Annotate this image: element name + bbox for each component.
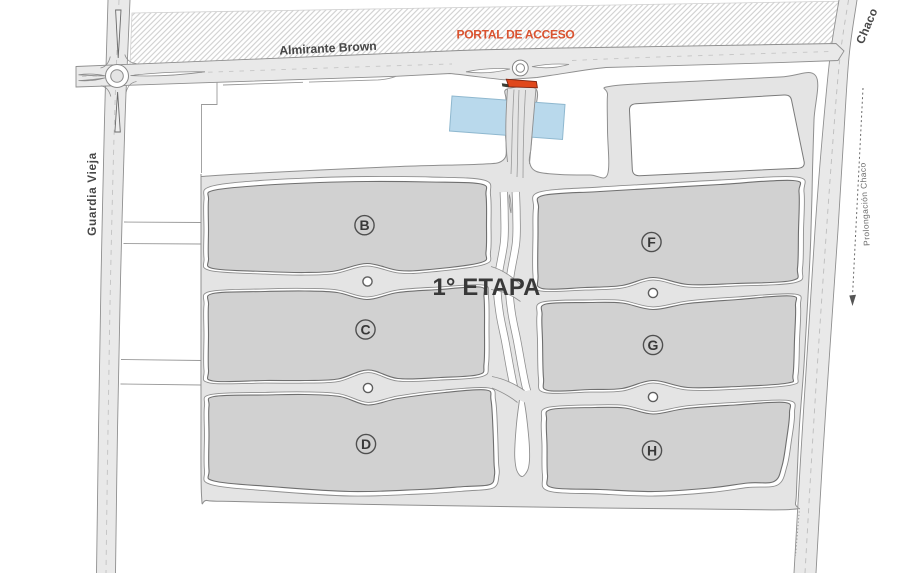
svg-text:1° ETAPA: 1° ETAPA	[432, 274, 540, 301]
svg-text:B: B	[359, 217, 369, 233]
svg-text:F: F	[647, 234, 656, 250]
svg-text:Guardia Vieja: Guardia Vieja	[85, 152, 99, 236]
svg-text:G: G	[648, 337, 659, 353]
svg-text:D: D	[361, 436, 371, 452]
svg-text:C: C	[360, 322, 370, 338]
svg-text:H: H	[647, 443, 657, 459]
svg-text:PORTAL DE ACCESO: PORTAL DE ACCESO	[457, 27, 575, 41]
